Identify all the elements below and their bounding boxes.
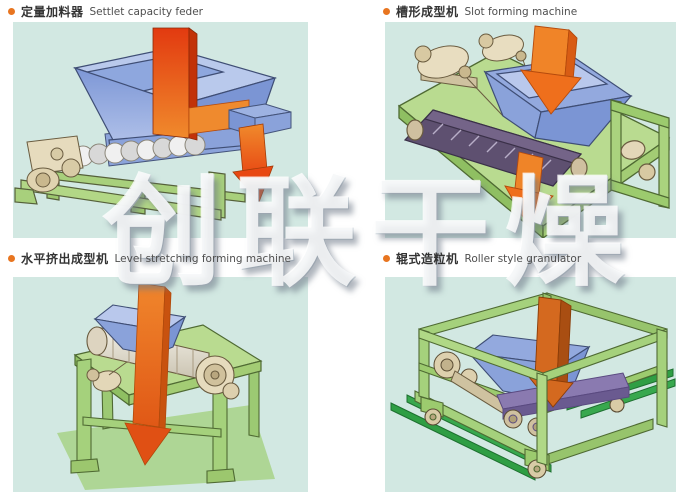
panel-roller-style-granulator — [385, 277, 676, 492]
label-cn: 定量加料器 — [21, 3, 84, 20]
bullet-icon — [8, 8, 15, 15]
label-cn: 水平挤出成型机 — [21, 250, 109, 267]
section-label-settlet-capacity-feeder: 定量加料器 Settlet capacity feder — [8, 3, 203, 20]
bullet-icon — [383, 8, 390, 15]
label-cn: 辊式造粒机 — [396, 250, 459, 267]
panel-slot-forming-machine — [385, 22, 676, 238]
label-en: Roller style granulator — [465, 253, 582, 265]
end-frame — [611, 100, 669, 208]
illustration-roller-style-granulator — [385, 277, 676, 492]
illustration-slot-forming-machine — [385, 22, 676, 238]
drive-motor — [27, 136, 83, 192]
section-label-level-stretching-forming-machine: 水平挤出成型机 Level stretching forming machine — [8, 250, 291, 267]
catalog-page: 定量加料器 Settlet capacity feder 槽形成型机 Slot … — [0, 0, 690, 492]
illustration-level-stretching-forming-machine — [13, 277, 308, 492]
section-label-roller-style-granulator: 辊式造粒机 Roller style granulator — [383, 250, 581, 267]
label-en: Settlet capacity feder — [90, 6, 203, 18]
label-en: Slot forming machine — [465, 6, 578, 18]
label-en: Level stretching forming machine — [115, 253, 292, 265]
bullet-icon — [8, 255, 15, 262]
section-label-slot-forming-machine: 槽形成型机 Slot forming machine — [383, 3, 577, 20]
bullet-icon — [383, 255, 390, 262]
illustration-settlet-capacity-feeder — [13, 22, 308, 238]
panel-settlet-capacity-feeder — [13, 22, 308, 238]
panel-level-stretching-forming-machine — [13, 277, 308, 492]
label-cn: 槽形成型机 — [396, 3, 459, 20]
